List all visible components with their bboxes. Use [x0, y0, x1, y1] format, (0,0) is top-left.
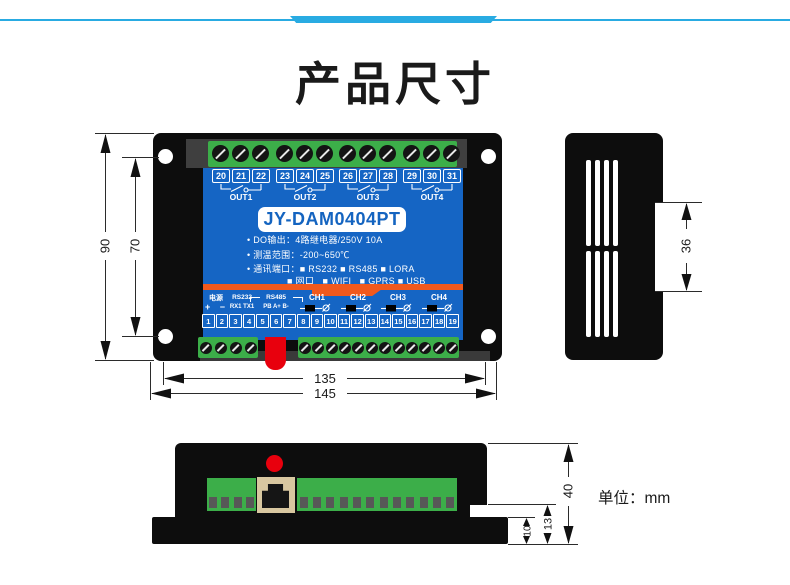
screw-icon [403, 145, 420, 162]
screw-icon [312, 342, 324, 354]
vent-slot [613, 251, 618, 337]
terminal-number-group: 262728 [339, 169, 397, 183]
screw-icon [393, 342, 405, 354]
terminal-slot-icon [393, 497, 401, 508]
dim-overall-width: 145 [314, 386, 336, 401]
screw-icon [339, 342, 351, 354]
terminal-number: 27 [359, 169, 377, 183]
terminal-slot-icon [420, 497, 428, 508]
screw-icon [276, 145, 293, 162]
terminal-number: 30 [423, 169, 441, 183]
screw-icon [433, 342, 445, 354]
terminal-slot-icon [446, 497, 454, 508]
screw-icon [423, 145, 440, 162]
terminal-slot-icon [313, 497, 321, 508]
terminal-slot-icon [326, 497, 334, 508]
screw-icon [359, 145, 376, 162]
terminal-number: 26 [339, 169, 357, 183]
terminal-number-group: 202122 [212, 169, 270, 183]
terminal-number: 28 [379, 169, 397, 183]
terminal-screw-group [403, 145, 460, 162]
terminal-screw-group [339, 145, 396, 162]
dim-height: 90 [98, 239, 113, 253]
rtd-sensor-icon [341, 302, 375, 312]
screw-icon [326, 342, 338, 354]
terminal-slot-icon [433, 497, 441, 508]
bottom-terminal-block-left [198, 337, 258, 358]
terminal-number: 23 [276, 169, 294, 183]
rs485-pins: PB A+ B- [249, 304, 303, 310]
dim-depth: 40 [561, 484, 576, 498]
terminal-number-group: 293031 [403, 169, 461, 183]
terminal-number: 31 [443, 169, 461, 183]
vent-slot [613, 160, 618, 246]
screw-icon [406, 342, 418, 354]
screw-icon [299, 342, 311, 354]
bottom-terminal-numbers: 12345678910111213141516171819 [202, 314, 459, 328]
vent-slot-row [586, 160, 618, 246]
channel-label: CH1 [297, 294, 337, 302]
terminal-number: 17 [419, 314, 432, 328]
vent-slot [604, 251, 609, 337]
mounting-hole [481, 149, 496, 164]
channel-label: CH4 [419, 294, 459, 302]
out-label: OUT1 [212, 193, 270, 202]
terminal-number: 10 [324, 314, 337, 328]
terminal-number: 12 [351, 314, 364, 328]
dim-step: 13 [543, 518, 555, 530]
vent-slot [586, 251, 591, 337]
screw-icon [419, 342, 431, 354]
terminal-number-group: 232425 [276, 169, 334, 183]
screw-icon [296, 145, 313, 162]
terminal-slot-icon [209, 497, 217, 508]
mounting-hole [158, 149, 173, 164]
terminal-number: 18 [433, 314, 446, 328]
terminal-number: 3 [229, 314, 242, 328]
dim-inner-width: 135 [314, 371, 336, 386]
bottom-terminal-block-right [298, 337, 459, 358]
red-indicator [266, 455, 283, 472]
terminal-number: 2 [216, 314, 229, 328]
screw-icon [379, 342, 391, 354]
spec-line: • DO输出：4路继电器/250V 10A [247, 236, 383, 245]
vent-slot [595, 251, 600, 337]
dim-pitch: 70 [128, 239, 143, 253]
screw-icon [379, 145, 396, 162]
rtd-sensor-icon [381, 302, 415, 312]
screw-icon [316, 145, 333, 162]
screw-icon [245, 342, 257, 354]
screw-icon [230, 342, 242, 354]
terminal-slot-icon [234, 497, 242, 508]
din-rail-notch [655, 202, 689, 292]
terminal-number: 8 [297, 314, 310, 328]
terminal-number: 5 [256, 314, 269, 328]
vent-slot [586, 160, 591, 246]
mounting-hole [158, 329, 173, 344]
terminal-number: 4 [243, 314, 256, 328]
terminal-slot-icon [221, 497, 229, 508]
screw-icon [446, 342, 458, 354]
vent-slot [595, 160, 600, 246]
screw-icon [443, 145, 460, 162]
terminal-number: 6 [270, 314, 283, 328]
screw-icon [200, 342, 212, 354]
terminal-number: 13 [365, 314, 378, 328]
screw-icon [215, 342, 227, 354]
terminal-number: 21 [232, 169, 250, 183]
vent-slot-row [586, 251, 618, 337]
screw-icon [212, 145, 229, 162]
terminal-number: 7 [283, 314, 296, 328]
terminal-number: 24 [296, 169, 314, 183]
terminal-slot-icon [380, 497, 388, 508]
mounting-hole [481, 329, 496, 344]
screw-icon [352, 342, 364, 354]
unit-label: 单位：mm [598, 486, 670, 508]
terminal-number: 14 [379, 314, 392, 328]
out-label: OUT2 [276, 193, 334, 202]
terminal-number: 29 [403, 169, 421, 183]
terminal-screw-group [276, 145, 333, 162]
terminal-slot-icon [353, 497, 361, 508]
product-dimensions-figure: 产品尺寸 202122 232425 262728 293031 OUT1 OU… [0, 0, 790, 585]
terminal-number: 16 [406, 314, 419, 328]
channel-label: CH3 [378, 294, 418, 302]
rtd-sensor-icon [300, 302, 334, 312]
header-accent-bar [290, 16, 497, 23]
model-nameplate: JY-DAM0404PT [258, 207, 406, 232]
terminal-slot-icon [300, 497, 308, 508]
channel-label: CH2 [338, 294, 378, 302]
rtd-sensor-icon [422, 302, 456, 312]
screw-icon [252, 145, 269, 162]
terminal-number: 15 [392, 314, 405, 328]
terminal-screw-group [212, 145, 269, 162]
terminal-number: 22 [252, 169, 270, 183]
terminal-number: 11 [338, 314, 351, 328]
dim-flange: 10 [523, 525, 534, 537]
out-label: OUT4 [403, 193, 461, 202]
out-label: OUT3 [339, 193, 397, 202]
bottom-view-terminal-left [207, 478, 256, 511]
terminal-slot-icon [246, 497, 254, 508]
screw-icon [232, 145, 249, 162]
screw-icon [339, 145, 356, 162]
spec-line: • 测温范围：-200~650℃ [247, 251, 350, 260]
terminal-slot-icon [406, 497, 414, 508]
vent-slot [604, 160, 609, 246]
rs485-label: RS485 [258, 295, 294, 302]
bottom-view-flange [152, 517, 508, 544]
page-title: 产品尺寸 [0, 48, 790, 114]
screw-icon [366, 342, 378, 354]
terminal-slot-icon [366, 497, 374, 508]
terminal-number: 25 [316, 169, 334, 183]
terminal-slot-icon [340, 497, 348, 508]
terminal-number: 19 [446, 314, 459, 328]
red-connector [265, 337, 286, 370]
spec-line: • 通讯端口：■ RS232 ■ RS485 ■ LORA [247, 265, 415, 274]
terminal-number: 1 [202, 314, 215, 328]
terminal-number: 9 [311, 314, 324, 328]
terminal-number: 20 [212, 169, 230, 183]
bottom-view-terminal-right [297, 478, 457, 511]
